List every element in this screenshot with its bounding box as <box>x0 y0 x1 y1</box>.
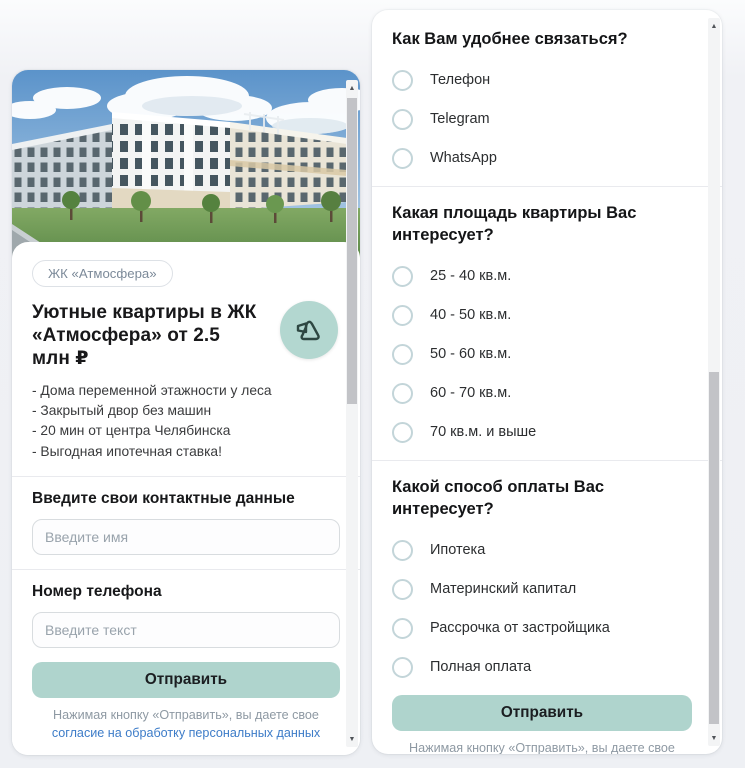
brand-logo <box>280 301 338 359</box>
scroll-up-icon[interactable]: ▲ <box>346 82 358 94</box>
option-label: 60 - 70 кв.м. <box>430 385 511 401</box>
option-area-60-70[interactable]: 60 - 70 кв.м. <box>392 382 692 404</box>
radio-icon[interactable] <box>392 148 413 169</box>
option-telefon[interactable]: Телефон <box>392 69 692 91</box>
page: { "left_card": { "badge": "ЖК «Атмосфера… <box>0 0 745 768</box>
consent-text: Нажимая кнопку «Отправить», вы даете сво… <box>32 707 340 743</box>
scroll-up-icon[interactable]: ▲ <box>708 20 720 32</box>
divider <box>12 569 360 570</box>
question-title: Какой способ оплаты Вас интересует? <box>392 476 692 520</box>
option-label: 25 - 40 кв.м. <box>430 268 511 284</box>
option-label: 40 - 50 кв.м. <box>430 307 511 323</box>
divider <box>372 186 722 187</box>
option-area-25-40[interactable]: 25 - 40 кв.м. <box>392 265 692 287</box>
survey-scrollbar-thumb[interactable] <box>709 372 719 724</box>
left-scrollbar[interactable]: ▲ ▼ <box>346 80 358 747</box>
ad-title: Уютные квартиры в ЖК «Атмосфера» от 2.5 … <box>32 301 260 371</box>
option-label: 70 кв.м. и выше <box>430 424 536 440</box>
radio-icon[interactable] <box>392 344 413 365</box>
radio-icon[interactable] <box>392 266 413 287</box>
submit-button[interactable]: Отправить <box>32 662 340 698</box>
option-area-70-plus[interactable]: 70 кв.м. и выше <box>392 421 692 443</box>
option-telegram[interactable]: Telegram <box>392 108 692 130</box>
option-whatsapp[interactable]: WhatsApp <box>392 147 692 169</box>
contact-data-heading: Введите свои контактные данные <box>32 490 340 508</box>
divider <box>12 476 360 477</box>
ad-card: ЖК «Атмосфера» Уютные квартиры в ЖК «Атм… <box>12 70 360 755</box>
name-input[interactable] <box>32 519 340 555</box>
divider <box>372 460 722 461</box>
option-area-50-60[interactable]: 50 - 60 кв.м. <box>392 343 692 365</box>
consent-link[interactable]: согласие на обработку персональных данны… <box>52 726 320 740</box>
option-ipoteka[interactable]: Ипотека <box>392 539 692 561</box>
scroll-down-icon[interactable]: ▼ <box>708 732 720 744</box>
survey-scrollbar[interactable]: ▲ ▼ <box>708 18 720 746</box>
radio-icon[interactable] <box>392 540 413 561</box>
left-scrollbar-thumb[interactable] <box>347 98 357 404</box>
option-label: Полная оплата <box>430 659 531 675</box>
consent-line: Нажимая кнопку «Отправить», вы даете сво… <box>409 741 675 754</box>
phone-input[interactable] <box>32 612 340 648</box>
radio-icon[interactable] <box>392 422 413 443</box>
option-label: Ипотека <box>430 542 485 558</box>
question-title: Как Вам удобнее связаться? <box>392 28 692 50</box>
option-label: Telegram <box>430 111 490 127</box>
option-area-40-50[interactable]: 40 - 50 кв.м. <box>392 304 692 326</box>
question-title: Какая площадь квартиры Вас интересует? <box>392 202 692 246</box>
option-label: Материнский капитал <box>430 581 576 597</box>
radio-icon[interactable] <box>392 657 413 678</box>
radio-icon[interactable] <box>392 618 413 639</box>
project-badge: ЖК «Атмосфера» <box>32 260 173 287</box>
ad-card-footer: Отправить Нажимая кнопку «Отправить», вы… <box>12 658 360 755</box>
property-photo <box>12 70 360 258</box>
option-label: WhatsApp <box>430 150 497 166</box>
radio-icon[interactable] <box>392 70 413 91</box>
bullet-item: - Выгодная ипотечная ставка! <box>32 442 340 462</box>
radio-icon[interactable] <box>392 109 413 130</box>
radio-icon[interactable] <box>392 579 413 600</box>
phone-heading: Номер телефона <box>32 583 340 601</box>
survey-consent-text: Нажимая кнопку «Отправить», вы даете сво… <box>392 740 692 754</box>
mountain-flag-icon <box>292 313 326 347</box>
bullet-item: - Закрытый двор без машин <box>32 401 340 421</box>
ad-bullets: - Дома переменной этажности у леса - Зак… <box>32 381 340 463</box>
survey-submit-button[interactable]: Отправить <box>392 695 692 731</box>
survey-card: Как Вам удобнее связаться? Телефон Teleg… <box>372 10 722 754</box>
consent-line: Нажимая кнопку «Отправить», вы даете сво… <box>53 708 319 722</box>
option-label: 50 - 60 кв.м. <box>430 346 511 362</box>
option-polnaya-oplata[interactable]: Полная оплата <box>392 656 692 678</box>
bullet-item: - Дома переменной этажности у леса <box>32 381 340 401</box>
option-mat-kapital[interactable]: Материнский капитал <box>392 578 692 600</box>
bullet-item: - 20 мин от центра Челябинска <box>32 421 340 441</box>
radio-icon[interactable] <box>392 305 413 326</box>
option-label: Телефон <box>430 72 490 88</box>
option-rassrochka[interactable]: Рассрочка от застройщика <box>392 617 692 639</box>
ad-card-body: ЖК «Атмосфера» Уютные квартиры в ЖК «Атм… <box>12 242 360 648</box>
radio-icon[interactable] <box>392 383 413 404</box>
scroll-down-icon[interactable]: ▼ <box>346 733 358 745</box>
option-label: Рассрочка от застройщика <box>430 620 610 636</box>
